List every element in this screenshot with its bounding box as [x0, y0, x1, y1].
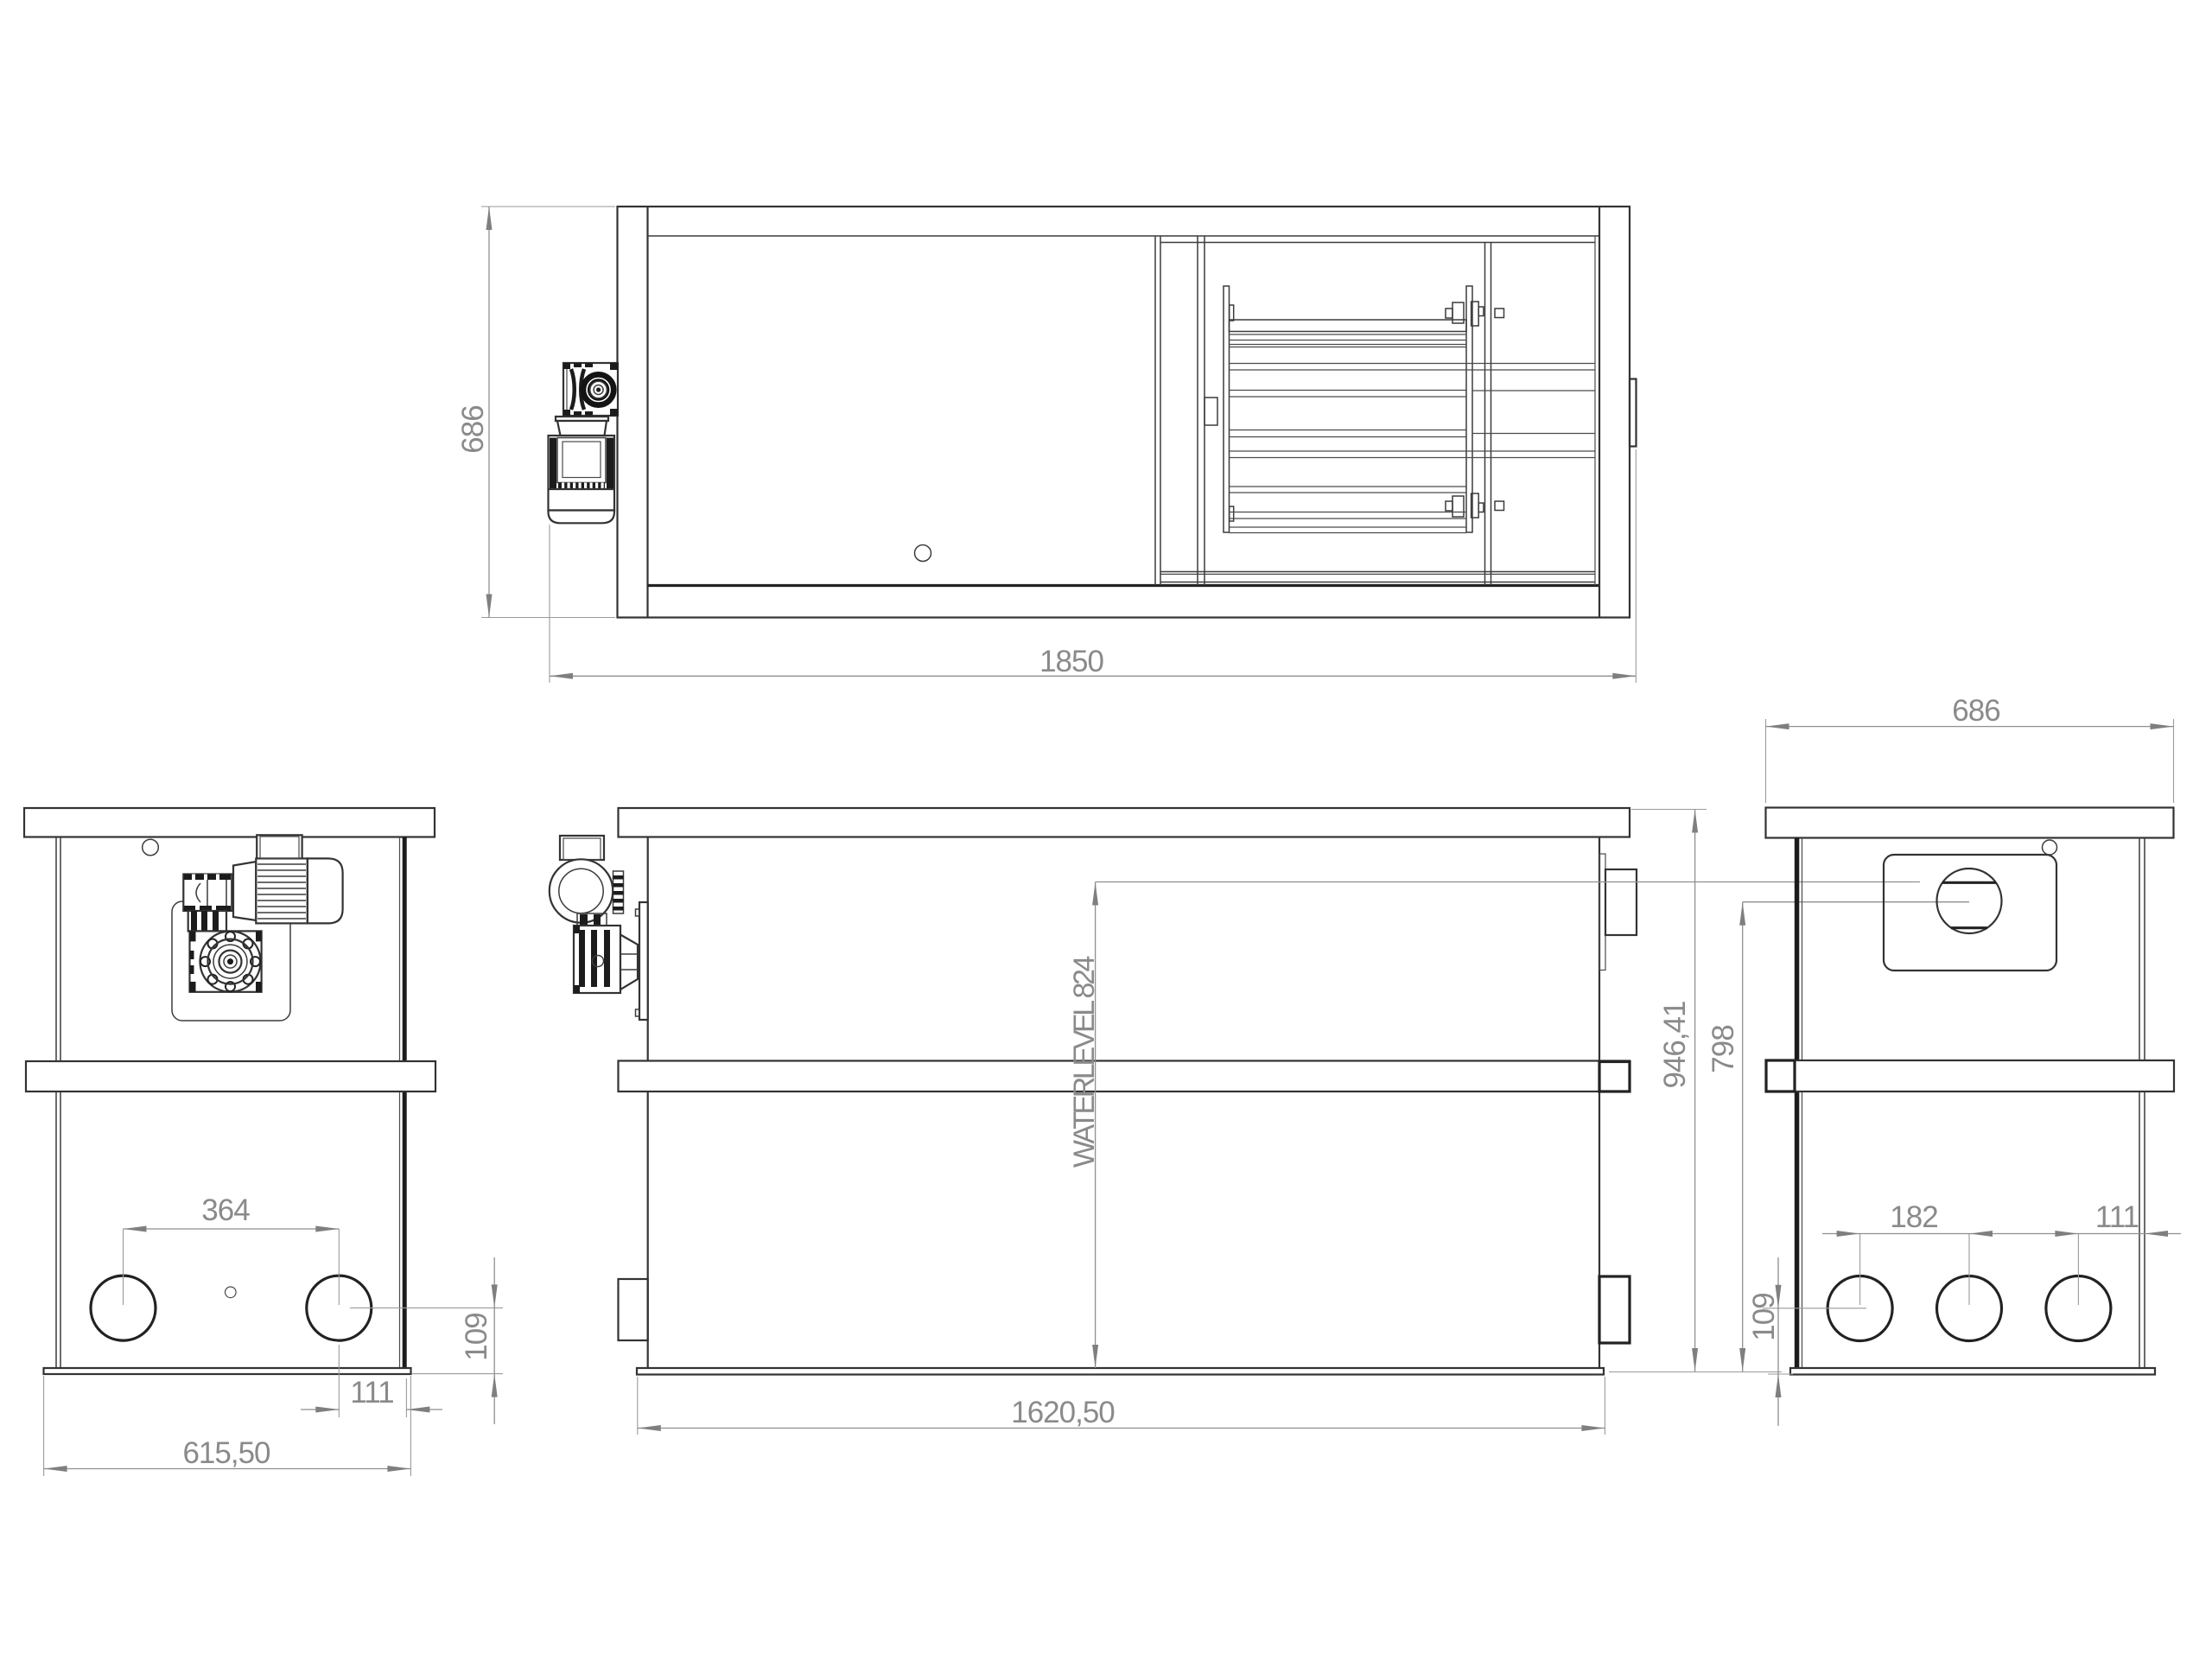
svg-text:109: 109	[1747, 1293, 1781, 1340]
svg-text:364: 364	[201, 1193, 250, 1227]
svg-text:946,41: 946,41	[1658, 1001, 1692, 1088]
svg-text:111: 111	[2095, 1200, 2139, 1234]
svg-text:686: 686	[456, 405, 490, 453]
svg-text:WATERLEVEL 824: WATERLEVEL 824	[1068, 956, 1101, 1168]
svg-text:109: 109	[460, 1313, 493, 1360]
svg-text:615,50: 615,50	[182, 1436, 270, 1470]
svg-text:111: 111	[350, 1376, 393, 1410]
svg-text:798: 798	[1707, 1025, 1740, 1072]
svg-text:1620,50: 1620,50	[1011, 1396, 1115, 1429]
svg-text:686: 686	[1952, 694, 1999, 728]
svg-text:182: 182	[1890, 1200, 1937, 1234]
svg-text:1850: 1850	[1039, 645, 1103, 678]
